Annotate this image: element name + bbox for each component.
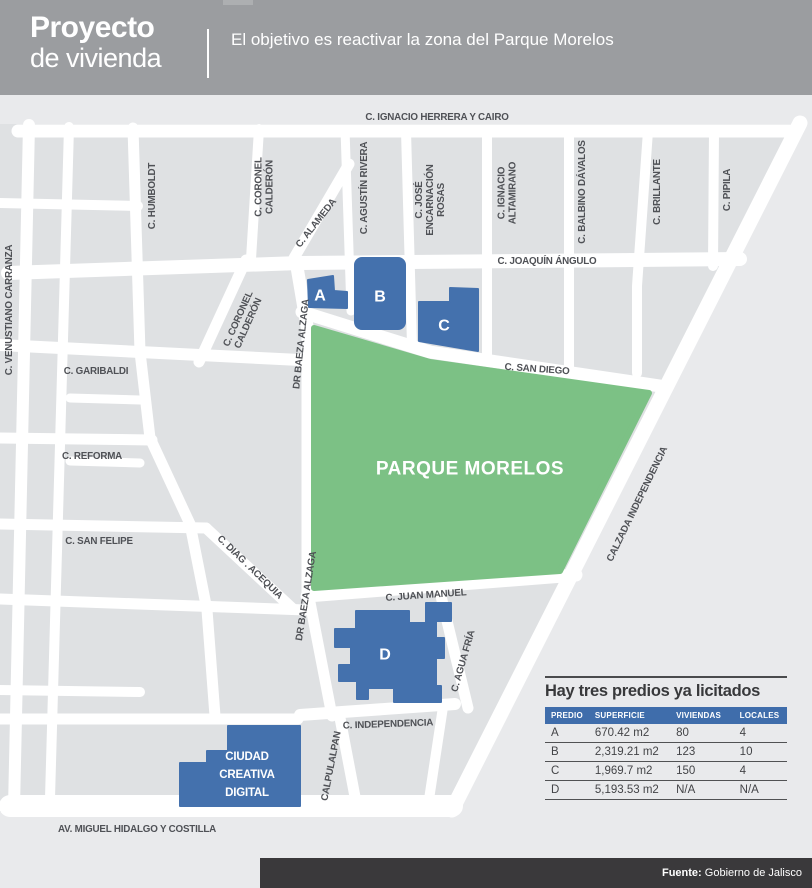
street-label: C. IGNACIO HERRERA Y CAIRO bbox=[365, 112, 509, 123]
source-value: Gobierno de Jalisco bbox=[702, 867, 802, 879]
table-cell: N/A bbox=[734, 781, 787, 800]
lot-label-A: A bbox=[314, 288, 326, 305]
table-cell: 4 bbox=[734, 762, 787, 781]
table-cell: 2,319.21 m2 bbox=[589, 743, 670, 762]
street-label: C. IGNACIOALTAMIRANO bbox=[496, 161, 518, 224]
predios-table-card: Hay tres predios ya licitados PREDIOSUPE… bbox=[545, 676, 787, 800]
table-cell: N/A bbox=[670, 781, 734, 800]
street-label: AV. MIGUEL HIDALGO Y COSTILLA bbox=[58, 824, 216, 835]
table-row: C1,969.7 m21504 bbox=[545, 762, 787, 781]
street-label: C. BRILLANTE bbox=[652, 159, 663, 225]
page-title: Proyecto de vivienda bbox=[30, 12, 161, 72]
table-top-rule bbox=[545, 676, 787, 678]
predios-table: PREDIOSUPERFICIEVIVIENDASLOCALES A670.42… bbox=[545, 707, 787, 800]
street-label: C. SAN FELIPE bbox=[65, 536, 133, 547]
table-cell: A bbox=[545, 724, 589, 743]
table-cell: 150 bbox=[670, 762, 734, 781]
table-header-row: PREDIOSUPERFICIEVIVIENDASLOCALES bbox=[545, 707, 787, 724]
header-tab bbox=[223, 0, 253, 5]
table-row: A670.42 m2804 bbox=[545, 724, 787, 743]
header-subtitle: El objetivo es reactivar la zona del Par… bbox=[231, 30, 791, 50]
table-cell: 80 bbox=[670, 724, 734, 743]
table-col-viviendas: VIVIENDAS bbox=[670, 707, 734, 724]
street-label: C. REFORMA bbox=[62, 451, 122, 462]
title-line-1: Proyecto bbox=[30, 12, 161, 44]
table-cell: 10 bbox=[734, 743, 787, 762]
street-label: C. GARIBALDI bbox=[64, 366, 129, 377]
table-cell: B bbox=[545, 743, 589, 762]
table-col-superficie: SUPERFICIE bbox=[589, 707, 670, 724]
lot-label-B: B bbox=[374, 289, 386, 306]
title-line-2: de vivienda bbox=[30, 44, 161, 72]
park-name-label: PARQUE MORELOS bbox=[376, 459, 564, 480]
source-text: Fuente: Gobierno de Jalisco bbox=[662, 867, 802, 879]
ciudad-creativa-digital-label: DIGITAL bbox=[225, 787, 269, 799]
street-label: C. CORONELCALDERÓN bbox=[253, 157, 275, 217]
header-divider bbox=[207, 29, 209, 78]
table-col-predio: PREDIO bbox=[545, 707, 589, 724]
table-row: B2,319.21 m212310 bbox=[545, 743, 787, 762]
street-label: C. BALBINO DÁVALOS bbox=[576, 140, 588, 244]
street-label: C. PIPILA bbox=[722, 169, 733, 211]
table-row: D5,193.53 m2N/AN/A bbox=[545, 781, 787, 800]
source-label: Fuente: bbox=[662, 867, 702, 879]
header: Proyecto de vivienda El objetivo es reac… bbox=[0, 0, 812, 95]
table-cell: D bbox=[545, 781, 589, 800]
street-label: C. HUMBOLDT bbox=[147, 163, 158, 230]
table-cell: 123 bbox=[670, 743, 734, 762]
table-cell: 670.42 m2 bbox=[589, 724, 670, 743]
table-cell: C bbox=[545, 762, 589, 781]
source-bar: Fuente: Gobierno de Jalisco bbox=[260, 858, 812, 888]
lot-label-C: C bbox=[438, 318, 450, 335]
table-cell: 1,969.7 m2 bbox=[589, 762, 670, 781]
street-label: C. JOAQUÍN ÁNGULO bbox=[498, 255, 598, 267]
table-cell: 4 bbox=[734, 724, 787, 743]
ciudad-creativa-digital-label: CREATIVA bbox=[219, 769, 274, 781]
ciudad-creativa-digital-label: CIUDAD bbox=[225, 751, 269, 763]
table-title: Hay tres predios ya licitados bbox=[545, 682, 787, 701]
street-label: C. AGUSTÍN RIVERA bbox=[358, 142, 370, 235]
table-col-locales: LOCALES bbox=[734, 707, 787, 724]
table-cell: 5,193.53 m2 bbox=[589, 781, 670, 800]
street-label: C. VENUSTIANO CARRANZA bbox=[4, 245, 15, 376]
lot-label-D: D bbox=[379, 647, 391, 664]
